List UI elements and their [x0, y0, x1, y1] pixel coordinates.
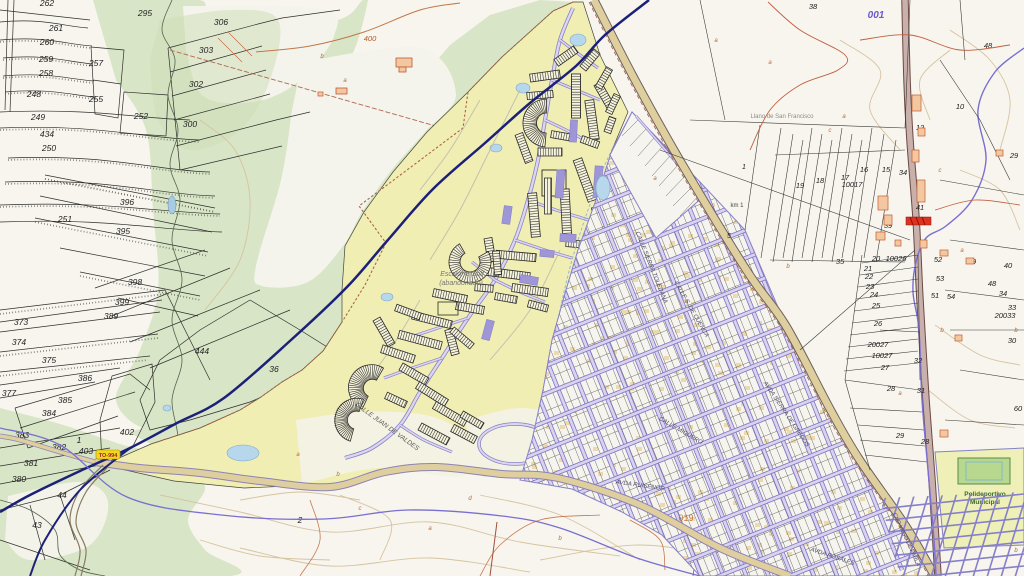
svg-text:28: 28	[920, 437, 930, 446]
svg-text:44: 44	[57, 490, 67, 500]
svg-text:295: 295	[137, 8, 152, 18]
svg-text:km 1: km 1	[730, 203, 744, 209]
svg-text:20033: 20033	[994, 311, 1017, 320]
svg-text:51: 51	[931, 291, 939, 300]
svg-text:19: 19	[796, 181, 805, 190]
svg-text:403: 403	[79, 446, 93, 456]
svg-text:c: c	[939, 168, 942, 174]
svg-text:402: 402	[120, 427, 134, 437]
svg-text:380: 380	[12, 474, 26, 484]
svg-text:377: 377	[2, 388, 16, 398]
svg-text:27: 27	[880, 363, 890, 372]
svg-text:29: 29	[895, 431, 905, 440]
svg-text:38: 38	[809, 2, 818, 11]
svg-text:10: 10	[956, 102, 965, 111]
svg-text:252: 252	[133, 111, 148, 121]
svg-text:34: 34	[999, 289, 1007, 298]
svg-text:444: 444	[195, 346, 209, 356]
svg-text:30: 30	[1008, 336, 1017, 345]
svg-text:53: 53	[936, 274, 945, 283]
svg-text:248: 248	[26, 89, 41, 99]
svg-text:300: 300	[183, 119, 197, 129]
svg-text:52: 52	[934, 255, 943, 264]
svg-text:302: 302	[189, 79, 203, 89]
svg-text:303: 303	[199, 45, 213, 55]
svg-text:398: 398	[128, 277, 142, 287]
svg-text:389: 389	[104, 311, 118, 321]
svg-text:25: 25	[871, 301, 881, 310]
svg-text:260: 260	[39, 37, 54, 47]
svg-text:10026: 10026	[886, 254, 908, 263]
svg-text:(abandonado): (abandonado)	[439, 280, 483, 287]
svg-text:257: 257	[88, 58, 103, 68]
svg-text:15: 15	[882, 165, 891, 174]
svg-text:249: 249	[30, 112, 45, 122]
svg-text:32: 32	[914, 356, 923, 365]
svg-text:20: 20	[871, 254, 881, 263]
svg-text:36: 36	[269, 364, 279, 374]
svg-text:259: 259	[38, 54, 53, 64]
svg-text:31: 31	[917, 386, 925, 395]
svg-text:10017: 10017	[842, 180, 864, 189]
svg-text:20027: 20027	[867, 340, 890, 349]
svg-text:60: 60	[1014, 404, 1023, 413]
svg-text:400: 400	[364, 34, 377, 43]
svg-text:261: 261	[48, 23, 63, 33]
svg-text:386: 386	[78, 373, 92, 383]
svg-text:251: 251	[57, 214, 72, 224]
svg-text:22: 22	[864, 272, 874, 281]
svg-text:48: 48	[988, 279, 997, 288]
svg-text:24: 24	[869, 290, 878, 299]
svg-text:399: 399	[115, 297, 129, 307]
svg-text:255: 255	[88, 94, 103, 104]
svg-text:396: 396	[120, 197, 134, 207]
svg-text:16: 16	[860, 165, 869, 174]
svg-text:384: 384	[42, 408, 56, 418]
svg-text:258: 258	[38, 68, 53, 78]
svg-text:1: 1	[77, 435, 82, 445]
svg-text:Escalona Golf: Escalona Golf	[440, 271, 485, 278]
svg-text:5: 5	[727, 233, 731, 240]
svg-text:26: 26	[873, 319, 883, 328]
svg-text:374: 374	[12, 337, 26, 347]
svg-text:250: 250	[41, 143, 56, 153]
svg-text:43: 43	[32, 520, 42, 530]
svg-text:Llano de San Francisco: Llano de San Francisco	[750, 114, 814, 120]
svg-text:385: 385	[58, 395, 72, 405]
svg-text:28: 28	[886, 384, 896, 393]
svg-text:434: 434	[40, 129, 54, 139]
svg-text:40: 40	[1004, 261, 1013, 270]
svg-text:54: 54	[947, 292, 955, 301]
svg-text:375: 375	[42, 355, 56, 365]
svg-text:306: 306	[214, 17, 228, 27]
svg-text:373: 373	[14, 317, 28, 327]
svg-text:c: c	[359, 506, 362, 512]
svg-text:34: 34	[899, 168, 907, 177]
svg-text:2: 2	[297, 515, 303, 525]
svg-text:019: 019	[678, 513, 693, 523]
svg-text:TO-994: TO-994	[99, 453, 118, 459]
svg-text:29: 29	[1009, 151, 1019, 160]
svg-text:395: 395	[116, 226, 130, 236]
svg-text:41: 41	[916, 203, 924, 212]
svg-text:35: 35	[836, 257, 845, 266]
svg-text:1: 1	[742, 164, 746, 171]
svg-text:262: 262	[39, 0, 54, 8]
svg-text:18: 18	[816, 176, 825, 185]
svg-text:c: c	[829, 128, 832, 134]
svg-text:001: 001	[868, 10, 885, 21]
svg-text:381: 381	[24, 458, 38, 468]
svg-text:10027: 10027	[872, 351, 894, 360]
